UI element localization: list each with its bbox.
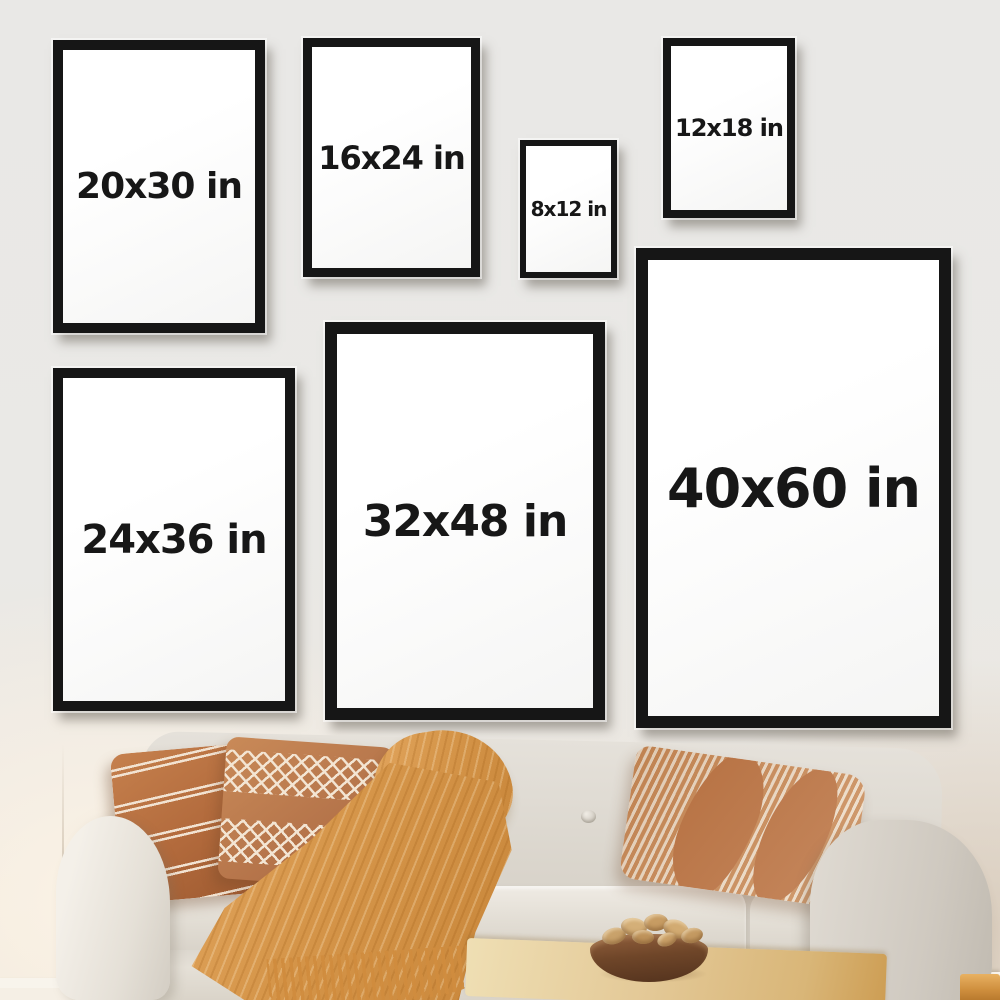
- frame-size-label: 40x60 in: [667, 457, 920, 520]
- frame-40x60: 40x60 in: [636, 248, 951, 728]
- frame-32x48: 32x48 in: [325, 322, 605, 720]
- poster-size-guide-scene: 20x30 in 16x24 in 8x12 in 12x18 in 24x36…: [0, 0, 1000, 1000]
- tuft-button: [581, 810, 596, 823]
- frame-size-label: 8x12 in: [531, 197, 607, 221]
- frame-8x12: 8x12 in: [520, 140, 617, 278]
- sofa-armrest-left: [56, 816, 170, 1000]
- frame-size-label: 24x36 in: [81, 517, 266, 563]
- frame-24x36: 24x36 in: [53, 368, 295, 711]
- frame-size-label: 32x48 in: [363, 496, 568, 547]
- frame-size-label: 16x24 in: [318, 139, 465, 177]
- frame-20x30: 20x30 in: [53, 40, 265, 333]
- frame-size-label: 12x18 in: [675, 114, 783, 142]
- frame-12x18: 12x18 in: [663, 38, 795, 218]
- frame-size-label: 20x30 in: [76, 166, 242, 207]
- frame-16x24: 16x24 in: [303, 38, 480, 277]
- side-table: [960, 974, 1000, 1000]
